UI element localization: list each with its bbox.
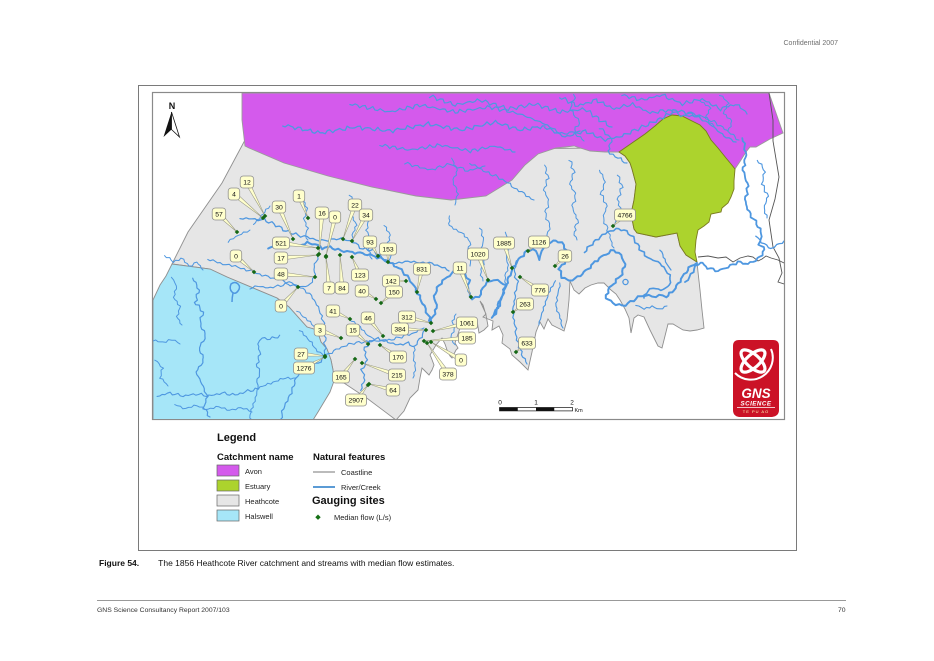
svg-text:30: 30 [275, 204, 283, 211]
svg-text:4: 4 [232, 191, 236, 198]
svg-text:7: 7 [327, 285, 331, 292]
svg-text:11: 11 [456, 265, 463, 272]
svg-text:185: 185 [461, 335, 473, 342]
svg-text:0: 0 [459, 357, 463, 364]
svg-text:TE PU AO: TE PU AO [743, 409, 769, 414]
svg-text:521: 521 [275, 240, 287, 247]
svg-text:378: 378 [442, 371, 454, 378]
svg-text:170: 170 [392, 354, 404, 361]
svg-text:312: 312 [401, 314, 413, 321]
svg-text:26: 26 [561, 253, 569, 260]
svg-text:1061: 1061 [459, 320, 474, 327]
svg-text:1: 1 [297, 193, 301, 200]
svg-text:17: 17 [277, 255, 285, 262]
svg-text:1020: 1020 [470, 251, 485, 258]
svg-text:150: 150 [388, 289, 400, 296]
svg-text:34: 34 [362, 212, 370, 219]
svg-text:Natural features: Natural features [313, 452, 385, 463]
svg-text:SCIENCE: SCIENCE [740, 401, 771, 408]
svg-text:N: N [169, 101, 176, 111]
svg-text:633: 633 [521, 340, 533, 347]
svg-text:1: 1 [534, 400, 538, 407]
svg-text:Halswell: Halswell [245, 512, 273, 521]
svg-text:0: 0 [333, 214, 337, 221]
svg-text:Estuary: Estuary [245, 482, 271, 491]
svg-text:River/Creek: River/Creek [341, 483, 381, 492]
svg-text:Heathcote: Heathcote [245, 497, 279, 506]
svg-text:40: 40 [358, 288, 366, 295]
svg-text:Catchment name: Catchment name [217, 452, 294, 463]
svg-text:2907: 2907 [348, 397, 363, 404]
svg-text:142: 142 [385, 278, 397, 285]
svg-text:0: 0 [234, 253, 238, 260]
svg-text:Median flow (L/s): Median flow (L/s) [334, 513, 392, 522]
svg-text:215: 215 [391, 372, 403, 379]
svg-text:84: 84 [338, 285, 346, 292]
svg-text:776: 776 [534, 287, 546, 294]
svg-text:Avon: Avon [245, 467, 262, 476]
svg-text:48: 48 [277, 271, 285, 278]
svg-text:165: 165 [335, 374, 347, 381]
svg-text:Km: Km [575, 408, 584, 414]
svg-text:0: 0 [279, 303, 283, 310]
svg-text:1885: 1885 [496, 240, 511, 247]
svg-text:123: 123 [354, 272, 366, 279]
svg-text:4766: 4766 [617, 212, 632, 219]
svg-text:64: 64 [389, 387, 397, 394]
svg-text:27: 27 [297, 351, 305, 358]
svg-text:GNS: GNS [741, 386, 770, 401]
svg-text:263: 263 [519, 301, 531, 308]
svg-text:41: 41 [329, 308, 337, 315]
svg-text:15: 15 [349, 327, 357, 334]
svg-text:0: 0 [498, 400, 502, 407]
svg-text:153: 153 [382, 246, 394, 253]
svg-text:12: 12 [243, 179, 251, 186]
svg-text:Gauging sites: Gauging sites [312, 495, 385, 507]
svg-text:Coastline: Coastline [341, 468, 372, 477]
svg-text:93: 93 [366, 239, 374, 246]
svg-text:46: 46 [364, 315, 372, 322]
svg-text:57: 57 [215, 211, 223, 218]
svg-text:384: 384 [394, 326, 406, 333]
svg-text:831: 831 [416, 266, 428, 273]
svg-text:2: 2 [570, 400, 574, 407]
svg-text:1276: 1276 [296, 365, 311, 372]
svg-text:16: 16 [318, 210, 326, 217]
svg-text:1126: 1126 [532, 239, 547, 246]
svg-text:3: 3 [318, 327, 322, 334]
svg-text:22: 22 [351, 202, 359, 209]
svg-text:Legend: Legend [217, 432, 256, 444]
